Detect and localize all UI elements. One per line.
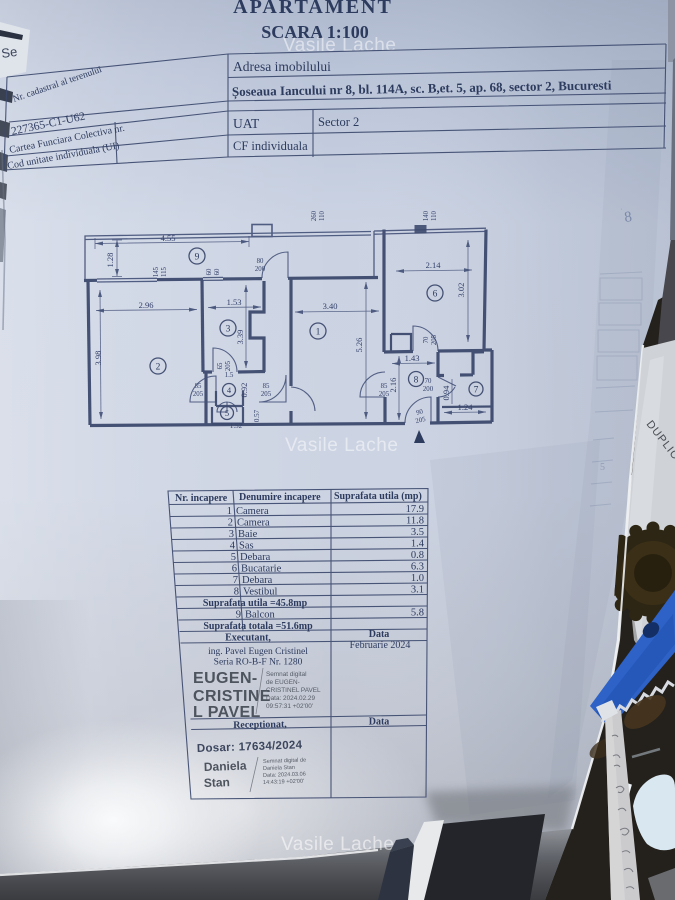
svg-text:CF individuala: CF individuala <box>233 139 308 153</box>
svg-text:Data: Data <box>369 629 390 640</box>
svg-text:140: 140 <box>423 210 430 221</box>
svg-text:de EUGEN-: de EUGEN- <box>266 679 300 686</box>
svg-text:Debara: Debara <box>240 552 271 563</box>
svg-text:Denumire incapere: Denumire incapere <box>239 492 321 503</box>
svg-text:Adresa imobilului: Adresa imobilului <box>233 59 331 74</box>
svg-text:˙: ˙ <box>620 207 623 216</box>
svg-text:2.96: 2.96 <box>139 300 154 310</box>
svg-text:70: 70 <box>423 336 430 343</box>
svg-text:5.8: 5.8 <box>411 608 424 619</box>
svg-text:L PAVEL: L PAVEL <box>193 704 261 721</box>
svg-text:Bucatarie: Bucatarie <box>241 564 282 575</box>
svg-text:0.94: 0.94 <box>441 385 451 401</box>
svg-text:3.39: 3.39 <box>235 330 245 345</box>
svg-text:3.1: 3.1 <box>411 585 424 596</box>
svg-text:Balcon: Balcon <box>245 610 275 621</box>
svg-text:EUGEN-: EUGEN- <box>193 670 258 687</box>
svg-text:Nr. incapere: Nr. incapere <box>175 493 228 504</box>
svg-text:85: 85 <box>381 383 388 390</box>
svg-text:Vasile Lache: Vasile Lache <box>281 834 394 855</box>
svg-text:8: 8 <box>414 376 419 386</box>
svg-text:205: 205 <box>261 391 272 398</box>
svg-text:Vestibul: Vestibul <box>243 587 278 598</box>
svg-text:205: 205 <box>225 360 232 371</box>
svg-text:5: 5 <box>225 408 229 418</box>
svg-text:200: 200 <box>255 266 266 273</box>
svg-text:3: 3 <box>226 325 231 335</box>
svg-text:6.3: 6.3 <box>411 562 424 573</box>
svg-text:0.8: 0.8 <box>411 550 424 561</box>
svg-text:6: 6 <box>232 564 237 575</box>
svg-text:145: 145 <box>153 266 160 277</box>
svg-text:5: 5 <box>600 462 605 473</box>
svg-text:1: 1 <box>316 328 321 338</box>
svg-text:Se: Se <box>0 44 18 61</box>
svg-text:7: 7 <box>474 386 479 396</box>
svg-text:4: 4 <box>230 541 236 552</box>
svg-text:Daniela Stan: Daniela Stan <box>263 765 295 772</box>
svg-text:1.4: 1.4 <box>411 539 425 550</box>
svg-text:Debara: Debara <box>242 575 273 586</box>
svg-text:4.55: 4.55 <box>161 233 176 243</box>
svg-text:CRISTINEL PAVEL: CRISTINEL PAVEL <box>266 687 321 694</box>
svg-text:9: 9 <box>236 610 241 621</box>
svg-text:Sector 2: Sector 2 <box>318 115 359 129</box>
svg-text:Sas: Sas <box>239 541 254 552</box>
svg-text:3.40: 3.40 <box>323 301 338 311</box>
svg-text:Data: 2024.02.29: Data: 2024.02.29 <box>266 695 315 702</box>
svg-text:3.5: 3.5 <box>411 527 424 538</box>
svg-text:Camera: Camera <box>236 506 269 517</box>
svg-text:1.52: 1.52 <box>230 422 243 430</box>
svg-text:1.24: 1.24 <box>458 402 474 412</box>
svg-text:1.0: 1.0 <box>411 573 424 584</box>
svg-text:Executant,: Executant, <box>225 633 271 644</box>
svg-text:205: 205 <box>193 391 204 398</box>
svg-text:Semnat digital: Semnat digital <box>266 671 307 678</box>
svg-text:8: 8 <box>234 587 239 598</box>
svg-text:Stan: Stan <box>204 775 230 790</box>
svg-text:Suprafata utila =45.8mp: Suprafata utila =45.8mp <box>203 598 308 609</box>
svg-text:5.26: 5.26 <box>354 338 364 353</box>
svg-text:2.16: 2.16 <box>388 378 398 393</box>
svg-text:0.92: 0.92 <box>239 383 249 398</box>
svg-text:1.43: 1.43 <box>405 353 420 363</box>
svg-text:80: 80 <box>257 258 264 265</box>
svg-text:Baie: Baie <box>238 529 258 540</box>
svg-text:70: 70 <box>425 378 432 385</box>
svg-text:3.98: 3.98 <box>93 351 103 366</box>
svg-text:205: 205 <box>431 334 438 345</box>
svg-text:85: 85 <box>263 383 270 390</box>
svg-text:17.9: 17.9 <box>406 504 424 515</box>
svg-text:11.8: 11.8 <box>406 516 424 527</box>
svg-text:Suprafata totala =51.6mp: Suprafata totala =51.6mp <box>203 621 313 632</box>
svg-text:9: 9 <box>195 253 200 263</box>
svg-text:Camera: Camera <box>237 518 270 529</box>
svg-text:85: 85 <box>195 383 202 390</box>
svg-text:2.14: 2.14 <box>426 260 442 270</box>
svg-text:UAT: UAT <box>233 116 260 131</box>
svg-text:1.28: 1.28 <box>105 253 115 268</box>
svg-text:115: 115 <box>161 266 168 277</box>
svg-text:260: 260 <box>311 210 318 221</box>
svg-text:6: 6 <box>433 290 438 300</box>
svg-text:0.57: 0.57 <box>253 409 261 422</box>
svg-text:60: 60 <box>206 268 213 275</box>
svg-text:7: 7 <box>233 575 238 586</box>
svg-text:2: 2 <box>228 518 233 529</box>
svg-text:ing. Pavel Eugen Cristinel: ing. Pavel Eugen Cristinel <box>208 647 308 657</box>
svg-text:1.53: 1.53 <box>227 297 242 307</box>
svg-text:09:57:31 +02'00': 09:57:31 +02'00' <box>266 703 313 710</box>
svg-text:Februarie 2024: Februarie 2024 <box>350 640 411 651</box>
svg-text:110: 110 <box>431 210 438 221</box>
svg-text:2: 2 <box>156 363 161 373</box>
svg-text:Daniela: Daniela <box>204 759 247 774</box>
svg-text:110: 110 <box>319 210 326 221</box>
svg-text:3.02: 3.02 <box>456 283 466 298</box>
svg-text:65: 65 <box>217 362 224 369</box>
svg-text:205: 205 <box>379 391 390 398</box>
svg-text:Data: Data <box>369 717 390 728</box>
svg-text:3: 3 <box>229 529 234 540</box>
svg-text:1.5: 1.5 <box>225 371 234 379</box>
svg-text:200: 200 <box>423 386 434 393</box>
svg-text:1: 1 <box>227 506 232 517</box>
svg-text:Seria RO-B-F Nr. 1280: Seria RO-B-F Nr. 1280 <box>214 658 303 668</box>
svg-text:5: 5 <box>231 552 236 563</box>
svg-text:60: 60 <box>214 268 221 275</box>
svg-text:Vasile Lache: Vasile Lache <box>285 435 398 456</box>
svg-text:APARTAMENT: APARTAMENT <box>233 0 393 18</box>
svg-text:Suprafata utila (mp): Suprafata utila (mp) <box>334 491 422 502</box>
